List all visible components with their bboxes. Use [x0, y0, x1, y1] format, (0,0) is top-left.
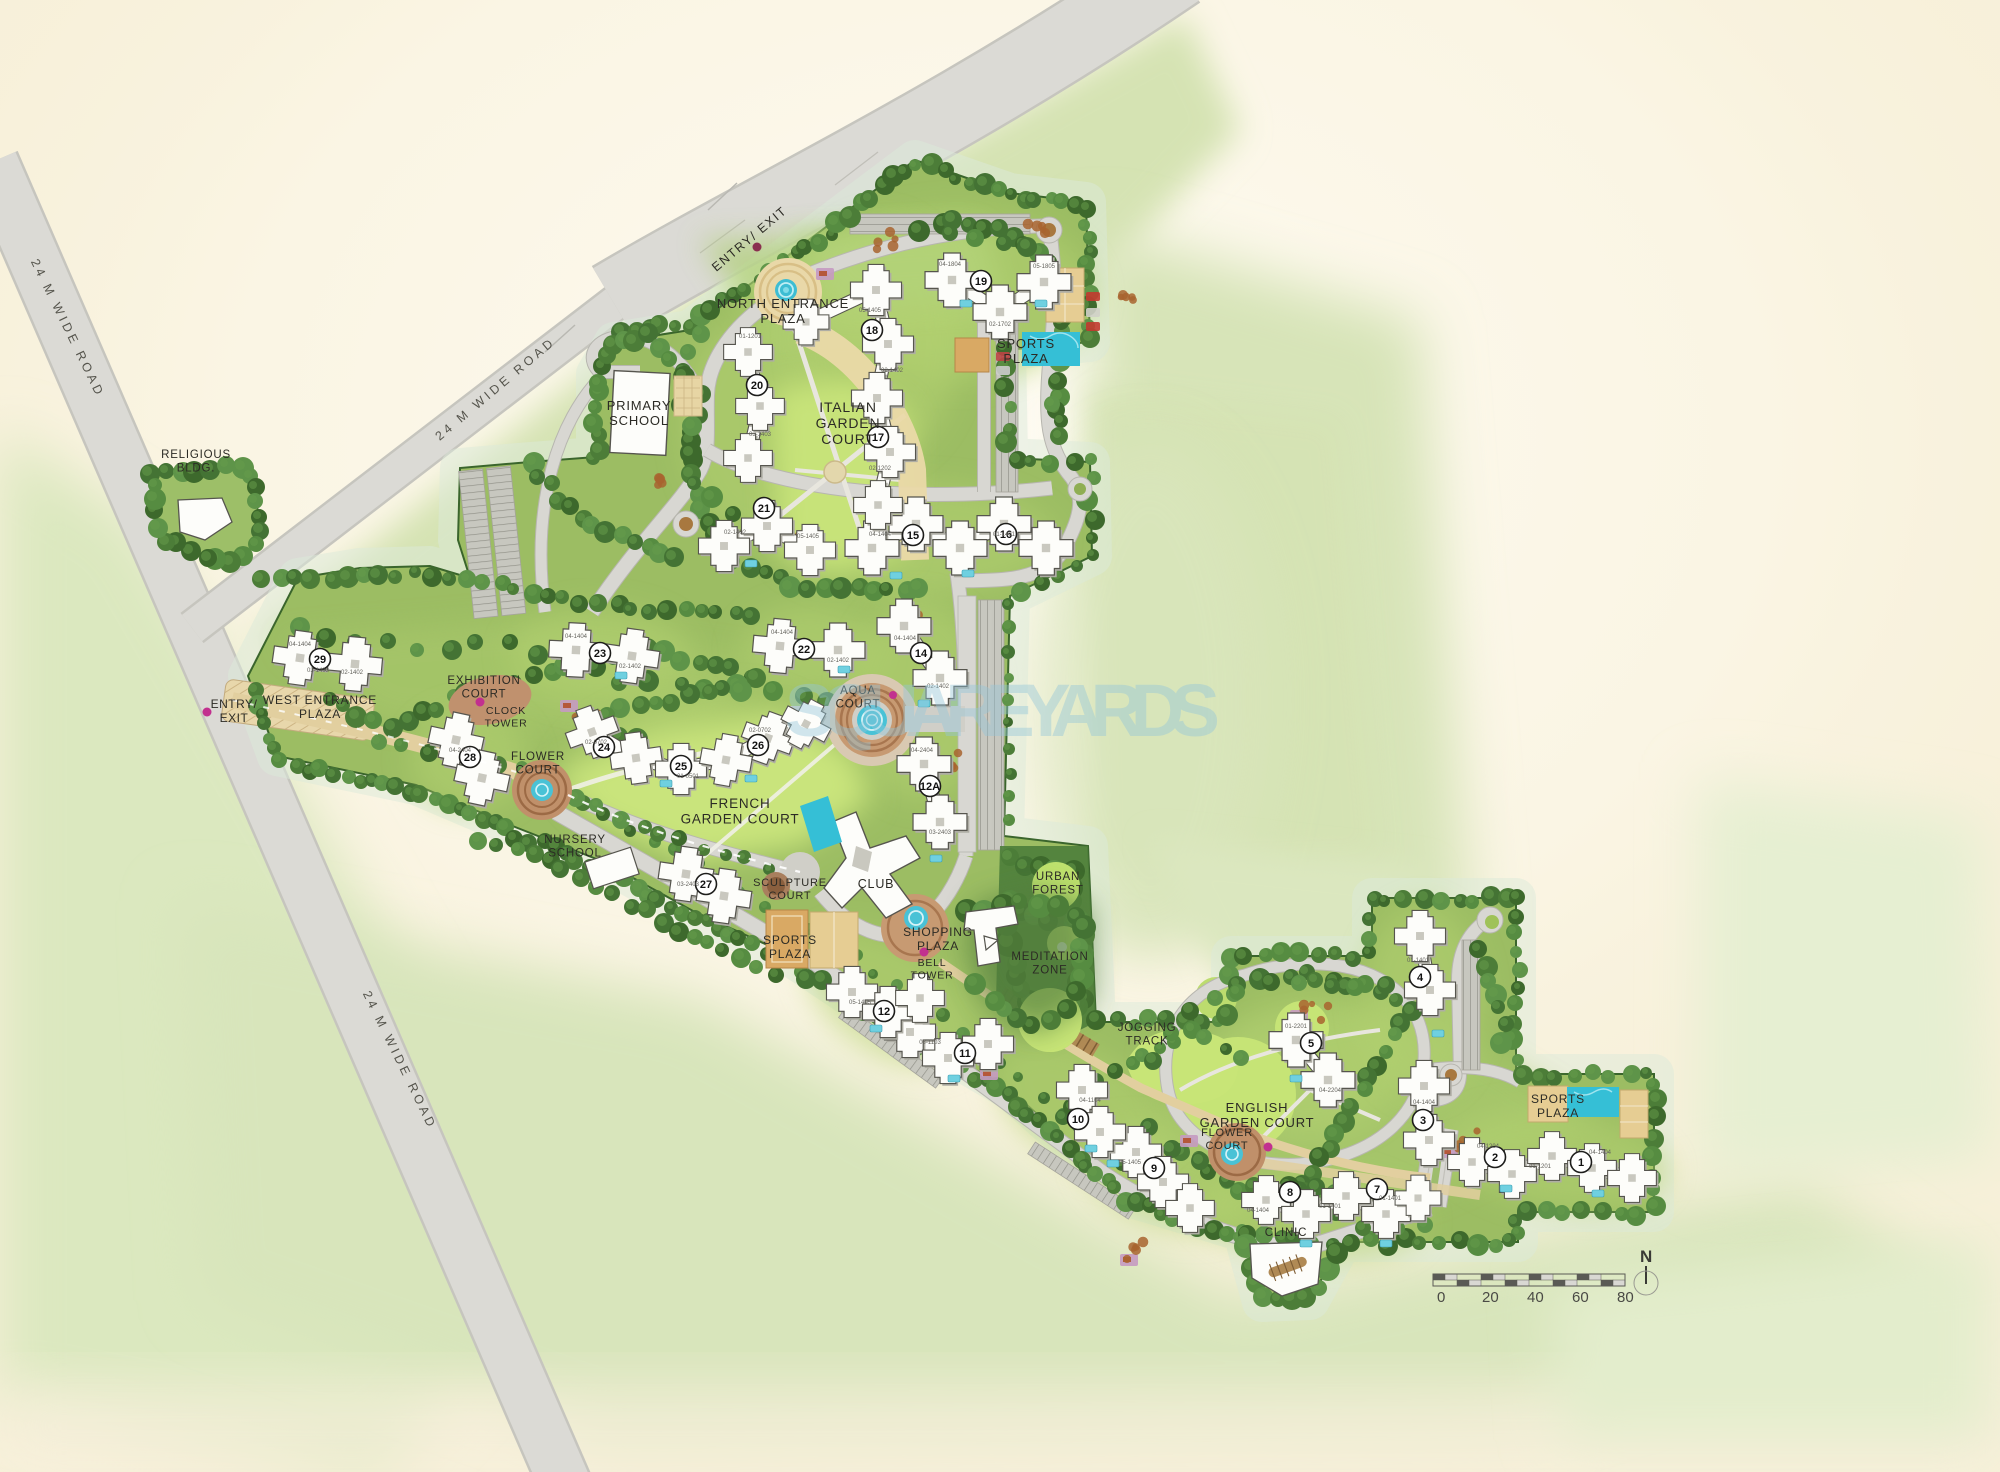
svg-text:03-1103: 03-1103 — [919, 1040, 941, 1046]
svg-text:04-1404: 04-1404 — [1247, 1208, 1270, 1214]
svg-text:01-1201: 01-1201 — [739, 334, 762, 340]
svg-text:02-1402: 02-1402 — [881, 368, 904, 374]
svg-text:01-1201: 01-1201 — [1529, 1164, 1552, 1170]
svg-text:01-2201: 01-2201 — [1285, 1024, 1308, 1030]
svg-text:MEDITATION: MEDITATION — [1011, 951, 1088, 963]
svg-text:SPORTS: SPORTS — [997, 336, 1055, 351]
svg-text:05-1405: 05-1405 — [797, 534, 820, 540]
svg-text:3: 3 — [1420, 1115, 1426, 1127]
svg-text:02-1402: 02-1402 — [341, 670, 364, 676]
svg-text:WEST ENTRANCE: WEST ENTRANCE — [263, 693, 377, 707]
svg-text:02-0702: 02-0702 — [585, 740, 608, 746]
svg-text:03-2403: 03-2403 — [929, 830, 952, 836]
svg-text:URBAN: URBAN — [1036, 871, 1080, 883]
svg-text:80: 80 — [1617, 1289, 1634, 1306]
svg-text:03-1403: 03-1403 — [307, 668, 330, 674]
svg-text:PLAZA: PLAZA — [299, 707, 341, 721]
svg-text:19: 19 — [975, 276, 987, 288]
svg-text:CLOCK: CLOCK — [486, 705, 526, 717]
svg-text:03-2403: 03-2403 — [677, 882, 700, 888]
svg-text:FRENCH: FRENCH — [709, 796, 770, 811]
svg-text:COURT: COURT — [821, 431, 875, 447]
svg-text:NURSERY: NURSERY — [544, 834, 606, 846]
svg-text:N: N — [1640, 1247, 1652, 1266]
svg-text:29: 29 — [314, 654, 326, 666]
svg-text:CLUB: CLUB — [858, 877, 895, 891]
svg-text:BLDG.: BLDG. — [177, 463, 216, 475]
svg-text:8: 8 — [1287, 1187, 1293, 1199]
svg-text:02-1402: 02-1402 — [724, 530, 747, 536]
svg-text:SPORTS: SPORTS — [763, 933, 817, 947]
svg-text:7: 7 — [1374, 1184, 1380, 1196]
svg-text:COURT: COURT — [769, 890, 812, 902]
svg-text:05-1405: 05-1405 — [1119, 1160, 1142, 1166]
svg-text:10: 10 — [1072, 1114, 1084, 1126]
svg-text:04-1204: 04-1204 — [1477, 1144, 1500, 1150]
svg-text:RELIGIOUS: RELIGIOUS — [161, 449, 231, 461]
svg-text:04-1404: 04-1404 — [1413, 1100, 1436, 1106]
svg-text:NORTH ENTRANCE: NORTH ENTRANCE — [717, 296, 849, 311]
svg-text:PLAZA: PLAZA — [760, 311, 805, 326]
svg-text:21: 21 — [758, 503, 770, 515]
svg-text:03-1403: 03-1403 — [749, 432, 772, 438]
svg-text:COURT: COURT — [1206, 1140, 1249, 1152]
svg-text:02-1202: 02-1202 — [869, 466, 892, 472]
svg-text:EXHIBITION: EXHIBITION — [447, 675, 520, 687]
svg-text:FLOWER: FLOWER — [511, 751, 565, 763]
svg-text:SCHOOL: SCHOOL — [548, 848, 601, 860]
svg-text:SCULPTURE: SCULPTURE — [753, 877, 827, 889]
svg-text:01-1401: 01-1401 — [1319, 1204, 1342, 1210]
svg-text:TRACK: TRACK — [1126, 1036, 1169, 1048]
svg-text:15: 15 — [907, 530, 919, 542]
svg-text:04-1404: 04-1404 — [771, 630, 794, 636]
svg-text:04-1404: 04-1404 — [869, 532, 892, 538]
svg-text:PLAZA: PLAZA — [769, 947, 811, 961]
svg-text:ITALIAN: ITALIAN — [819, 399, 876, 415]
svg-text:01-1401: 01-1401 — [1379, 1196, 1402, 1202]
svg-text:PLAZA: PLAZA — [917, 939, 959, 953]
svg-text:20: 20 — [1482, 1289, 1499, 1306]
svg-text:9: 9 — [1151, 1163, 1157, 1175]
svg-text:5: 5 — [1308, 1038, 1314, 1050]
svg-text:20: 20 — [751, 380, 763, 392]
svg-text:02-1402: 02-1402 — [619, 664, 642, 670]
svg-text:11: 11 — [959, 1048, 971, 1060]
svg-text:2: 2 — [1492, 1152, 1498, 1164]
svg-text:04-1804: 04-1804 — [939, 262, 962, 268]
svg-text:60: 60 — [1572, 1289, 1589, 1306]
svg-text:04-1104: 04-1104 — [1079, 1098, 1101, 1104]
svg-text:05-1805: 05-1805 — [1033, 264, 1056, 270]
svg-text:40: 40 — [1527, 1289, 1544, 1306]
svg-text:PLAZA: PLAZA — [1003, 351, 1048, 366]
svg-text:18: 18 — [866, 325, 878, 337]
svg-text:02-0702: 02-0702 — [749, 728, 772, 734]
svg-text:ENTRY/: ENTRY/ — [211, 697, 258, 711]
svg-text:PLAZA: PLAZA — [1537, 1106, 1579, 1120]
svg-text:TOWER: TOWER — [485, 718, 528, 730]
svg-text:ZONE: ZONE — [1032, 965, 1067, 977]
svg-text:EXIT: EXIT — [220, 711, 249, 725]
svg-text:GARDEN COURT: GARDEN COURT — [681, 812, 800, 827]
svg-text:25: 25 — [675, 761, 687, 773]
svg-text:SCHOOL: SCHOOL — [609, 413, 669, 428]
svg-text:JOGGING: JOGGING — [1118, 1022, 1177, 1034]
svg-text:26: 26 — [752, 740, 764, 752]
svg-text:COURT: COURT — [516, 765, 561, 777]
svg-text:04-1404: 04-1404 — [1589, 1150, 1612, 1156]
svg-text:01-1401: 01-1401 — [993, 532, 1016, 538]
svg-text:22: 22 — [798, 644, 810, 656]
svg-text:05-1405: 05-1405 — [859, 308, 882, 314]
svg-text:TOWER: TOWER — [911, 970, 954, 982]
svg-text:COURT: COURT — [462, 689, 507, 701]
svg-text:01-0501: 01-0501 — [677, 774, 700, 780]
svg-text:14: 14 — [915, 648, 928, 660]
svg-text:02-1702: 02-1702 — [989, 322, 1012, 328]
svg-text:01-1401: 01-1401 — [1407, 958, 1430, 964]
svg-text:ENGLISH: ENGLISH — [1226, 1100, 1289, 1115]
svg-text:23: 23 — [594, 648, 606, 660]
svg-text:BELL: BELL — [918, 957, 947, 969]
svg-text:1: 1 — [1578, 1157, 1584, 1169]
svg-text:12A: 12A — [920, 781, 940, 793]
svg-text:27: 27 — [700, 879, 712, 891]
svg-text:PRIMARY: PRIMARY — [607, 398, 672, 413]
svg-text:4: 4 — [1417, 972, 1424, 984]
svg-text:04-1404: 04-1404 — [894, 636, 917, 642]
svg-text:04-1404: 04-1404 — [289, 642, 312, 648]
svg-text:0: 0 — [1437, 1289, 1445, 1306]
svg-text:02-1402: 02-1402 — [827, 658, 850, 664]
svg-text:12: 12 — [878, 1006, 890, 1018]
svg-text:SPORTS: SPORTS — [1531, 1092, 1585, 1106]
svg-text:FLOWER: FLOWER — [1201, 1127, 1253, 1139]
svg-text:04-2404: 04-2404 — [449, 748, 472, 754]
svg-text:CLINIC: CLINIC — [1265, 1227, 1308, 1239]
svg-text:SQUAREYARDS: SQUAREYARDS — [785, 669, 1222, 752]
svg-text:SHOPPING: SHOPPING — [903, 925, 973, 939]
svg-text:05-1405: 05-1405 — [849, 1000, 872, 1006]
svg-text:04-1404: 04-1404 — [565, 634, 588, 640]
svg-text:GARDEN: GARDEN — [816, 415, 881, 431]
svg-text:FOREST: FOREST — [1032, 885, 1083, 897]
svg-text:04-2204: 04-2204 — [1319, 1088, 1342, 1094]
